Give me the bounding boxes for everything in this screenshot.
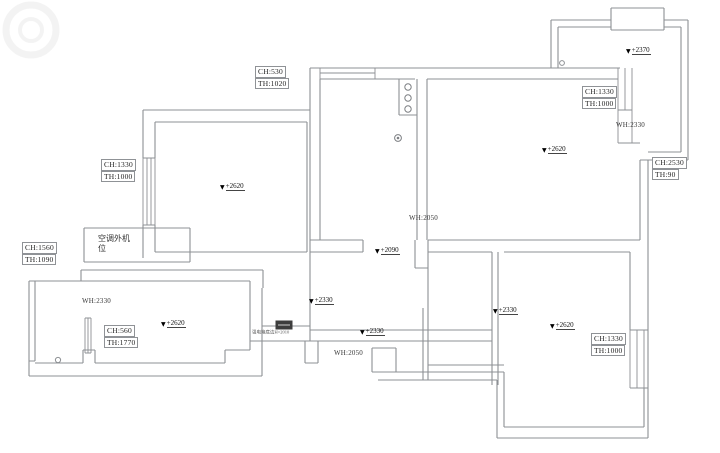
elevation-value: +2620 bbox=[226, 182, 245, 191]
height-label-line: CH:1330 bbox=[101, 159, 136, 171]
elevation-marker-dining-ceiling: ▼+2620 bbox=[542, 145, 567, 154]
height-label-line: CH:1560 bbox=[22, 242, 57, 254]
height-label-line: TH:1000 bbox=[591, 345, 625, 357]
height-label-bedroom2-east-window: CH:1330TH:1000 bbox=[591, 333, 626, 356]
elevation-marker-balcony-ceiling: ▼+2370 bbox=[626, 46, 651, 55]
width-label-living-window-width: WH:2330 bbox=[82, 297, 111, 305]
height-label-line: CH:1330 bbox=[582, 86, 617, 98]
width-label-kitchen-opening-width: WH:2050 bbox=[409, 214, 438, 222]
height-label-line: CH:560 bbox=[104, 325, 135, 337]
elevation-marker-kitchen-doorway: ▼+2090 bbox=[375, 246, 400, 255]
elevation-value: +2620 bbox=[548, 145, 567, 154]
floorplan-canvas: CH:530TH:1020CH:1330TH:1000CH:1560TH:109… bbox=[0, 0, 720, 453]
elevation-triangle-icon: ▼ bbox=[550, 323, 555, 330]
elevation-marker-hall-west: ▼+2330 bbox=[309, 296, 334, 305]
elevation-triangle-icon: ▼ bbox=[161, 321, 166, 328]
elevation-value: +2330 bbox=[366, 327, 385, 336]
labels-layer: CH:530TH:1020CH:1330TH:1000CH:1560TH:109… bbox=[0, 0, 720, 453]
elevation-marker-hall-south: ▼+2330 bbox=[360, 327, 385, 336]
elevation-value: +2090 bbox=[381, 246, 400, 255]
height-label-kitchen-north-window: CH:530TH:1020 bbox=[255, 66, 289, 89]
height-label-bedroom1-west-window: CH:1330TH:1000 bbox=[101, 159, 136, 182]
height-label-line: TH:90 bbox=[652, 169, 679, 181]
annotation-electric-box-note: 强电箱底边H=2010 bbox=[252, 331, 289, 336]
height-label-line: TH:1770 bbox=[104, 337, 138, 349]
height-label-west-balcony-window: CH:1560TH:1090 bbox=[22, 242, 57, 265]
elevation-triangle-icon: ▼ bbox=[375, 248, 380, 255]
height-label-line: TH:1090 bbox=[22, 254, 56, 266]
width-label-dining-window-width: WH:2330 bbox=[616, 121, 645, 129]
elevation-triangle-icon: ▼ bbox=[360, 329, 365, 336]
height-label-line: TH:1000 bbox=[101, 171, 135, 183]
elevation-value: +2330 bbox=[499, 306, 518, 315]
elevation-triangle-icon: ▼ bbox=[493, 308, 498, 315]
elevation-marker-bedroom2-ceiling: ▼+2620 bbox=[550, 321, 575, 330]
elevation-value: +2370 bbox=[632, 46, 651, 55]
width-label-bath-opening-width: WH:2050 bbox=[334, 349, 363, 357]
elevation-marker-bedroom1-ceiling: ▼+2620 bbox=[220, 182, 245, 191]
elevation-marker-corridor-east: ▼+2330 bbox=[493, 306, 518, 315]
room-label-ac-outdoor-unit: 空调外机 位 bbox=[98, 234, 130, 254]
height-label-line: CH:1330 bbox=[591, 333, 626, 345]
elevation-value: +2620 bbox=[556, 321, 575, 330]
height-label-east-balcony-rail: CH:2530TH:90 bbox=[652, 157, 687, 180]
height-label-line: CH:2530 bbox=[652, 157, 687, 169]
elevation-value: +2330 bbox=[315, 296, 334, 305]
elevation-triangle-icon: ▼ bbox=[220, 184, 225, 191]
height-label-line: TH:1000 bbox=[582, 98, 616, 110]
height-label-living-west-window: CH:560TH:1770 bbox=[104, 325, 138, 348]
elevation-triangle-icon: ▼ bbox=[309, 298, 314, 305]
height-label-line: TH:1020 bbox=[255, 78, 289, 90]
height-label-dining-east-window: CH:1330TH:1000 bbox=[582, 86, 617, 109]
elevation-marker-living-ceiling: ▼+2620 bbox=[161, 319, 186, 328]
elevation-value: +2620 bbox=[167, 319, 186, 328]
height-label-line: CH:530 bbox=[255, 66, 286, 78]
elevation-triangle-icon: ▼ bbox=[626, 48, 631, 55]
elevation-triangle-icon: ▼ bbox=[542, 147, 547, 154]
